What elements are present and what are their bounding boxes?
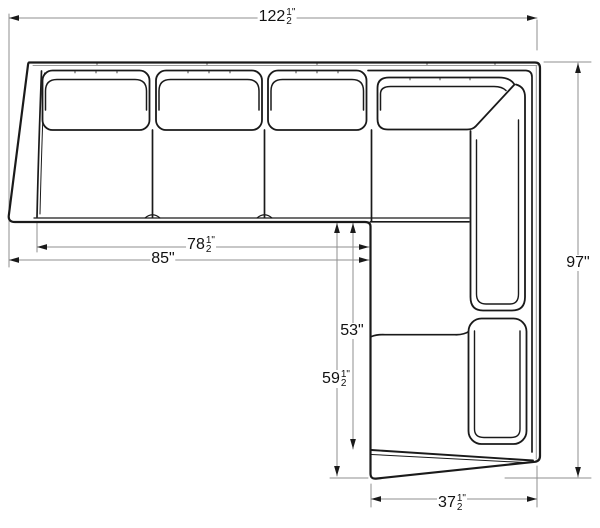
inch-mark: " (346, 370, 350, 379)
dimension-label-chaise-length: 591"2 (321, 370, 351, 388)
dimension-label-chaise-width: 371"2 (437, 494, 467, 512)
chaise-back-cushion (469, 319, 527, 445)
sofa-drawing (0, 0, 600, 528)
fraction-denominator: 2 (457, 503, 463, 512)
arrow-total-width-left (9, 15, 19, 21)
arrow-chaise-width-left (371, 496, 381, 502)
arrow-left-section-right (359, 257, 369, 263)
arrow-chaise-interior-bottom (350, 439, 356, 449)
dimension-value: 37 (438, 495, 456, 511)
arrow-chaise-interior-top (350, 223, 356, 233)
dimension-label-total-width: 1221"2 (258, 8, 297, 26)
sofa-dimension-diagram: 1221"2 781"2 85" 53" 591"2 97" 371"2 (0, 0, 600, 528)
arrow-total-width-right (527, 15, 537, 21)
dimension-label-left-section-width: 85" (150, 251, 175, 267)
inch-mark: " (584, 255, 590, 271)
dimension-label-chaise-interior-length: 53" (339, 323, 364, 339)
fraction-denominator: 2 (341, 379, 347, 388)
fraction: 1"2 (206, 236, 215, 254)
arrow-chaise-length-bottom (334, 466, 340, 476)
dimension-value: 78 (187, 237, 205, 253)
inch-mark: " (358, 323, 364, 339)
inch-mark: " (292, 8, 296, 17)
arrow-chaise-width-right (527, 496, 537, 502)
inch-mark: " (462, 494, 466, 503)
back-cushions (43, 71, 367, 131)
dimension-label-total-depth: 97" (565, 255, 590, 271)
arrow-chaise-length-top (334, 223, 340, 233)
arrow-interior-width-right (359, 244, 369, 250)
arrow-total-depth-bottom (575, 467, 581, 477)
dimension-value: 59 (322, 371, 340, 387)
dimension-value: 97 (566, 255, 584, 271)
arrow-interior-width-left (37, 244, 47, 250)
fraction-denominator: 2 (286, 17, 292, 26)
dimension-label-interior-width: 781"2 (186, 236, 216, 254)
chaise-back-cushion-outline (469, 319, 527, 445)
fraction-denominator: 2 (206, 245, 212, 254)
dimension-value: 85 (151, 251, 169, 267)
fraction: 1"2 (457, 494, 466, 512)
arrow-total-depth-top (575, 63, 581, 73)
fraction: 1"2 (341, 370, 350, 388)
inch-mark: " (211, 236, 215, 245)
fraction: 1"2 (286, 8, 295, 26)
inch-mark: " (169, 251, 175, 267)
dimension-value: 53 (340, 323, 358, 339)
dimension-value: 122 (259, 9, 286, 25)
arrow-left-section-left (9, 257, 19, 263)
